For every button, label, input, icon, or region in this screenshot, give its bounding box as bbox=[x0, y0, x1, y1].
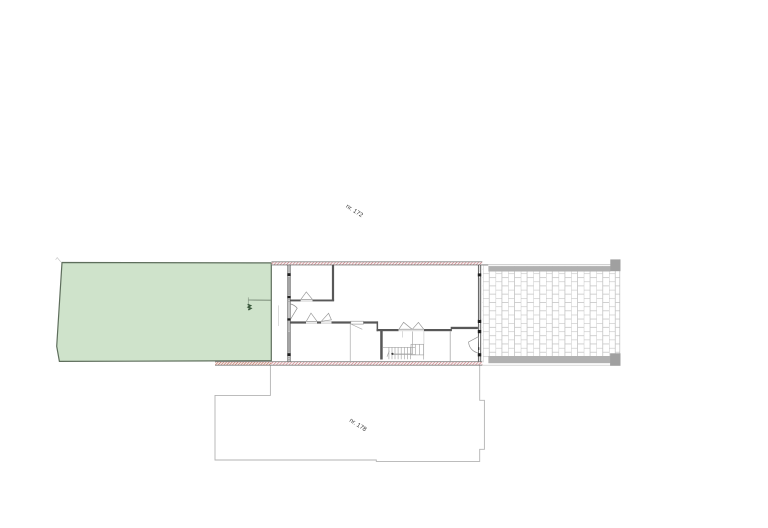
svg-text:nr. 172: nr. 172 bbox=[344, 203, 364, 219]
svg-text:nr. 178: nr. 178 bbox=[348, 417, 368, 433]
